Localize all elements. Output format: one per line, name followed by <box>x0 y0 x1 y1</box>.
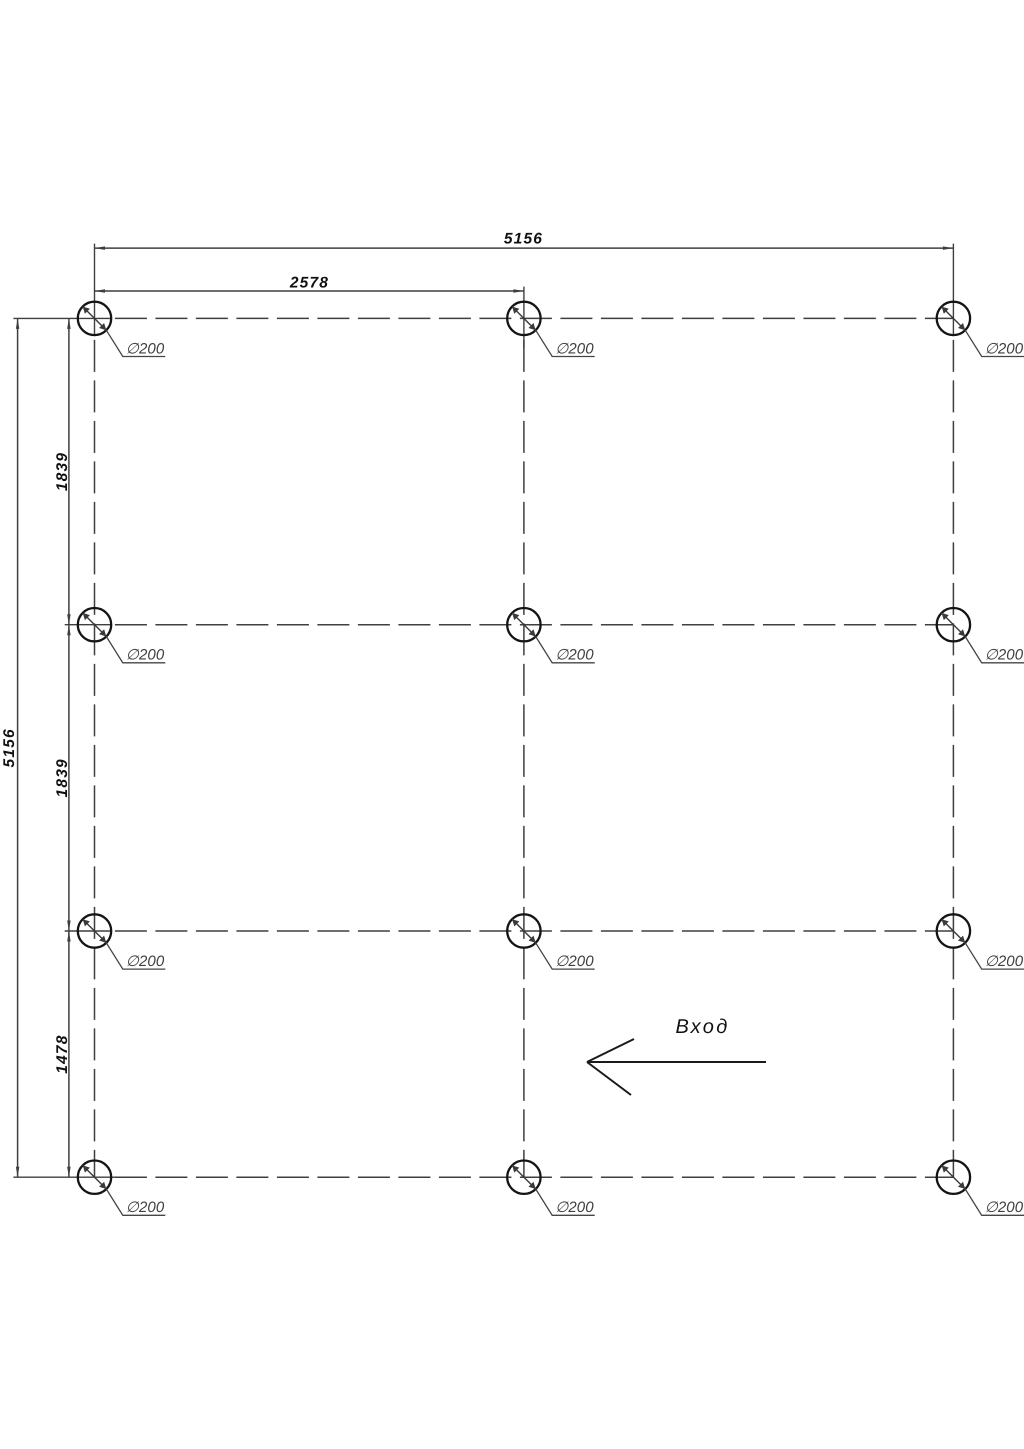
svg-text:∅200: ∅200 <box>126 953 165 970</box>
svg-text:∅200: ∅200 <box>985 340 1024 357</box>
svg-text:5156: 5156 <box>504 230 543 247</box>
svg-text:∅200: ∅200 <box>985 647 1024 664</box>
svg-text:Вход: Вход <box>676 1016 730 1038</box>
svg-text:∅200: ∅200 <box>985 953 1024 970</box>
svg-text:5156: 5156 <box>1 728 18 767</box>
svg-text:∅200: ∅200 <box>555 340 594 357</box>
svg-text:∅200: ∅200 <box>555 1199 594 1216</box>
svg-text:1839: 1839 <box>54 452 71 491</box>
svg-text:2578: 2578 <box>289 275 329 292</box>
svg-text:∅200: ∅200 <box>985 1199 1024 1216</box>
svg-text:1839: 1839 <box>54 758 71 797</box>
svg-text:∅200: ∅200 <box>555 647 594 664</box>
svg-text:1478: 1478 <box>54 1034 71 1073</box>
svg-text:∅200: ∅200 <box>126 1199 165 1216</box>
svg-text:∅200: ∅200 <box>126 340 165 357</box>
svg-text:∅200: ∅200 <box>126 647 165 664</box>
svg-text:∅200: ∅200 <box>555 953 594 970</box>
